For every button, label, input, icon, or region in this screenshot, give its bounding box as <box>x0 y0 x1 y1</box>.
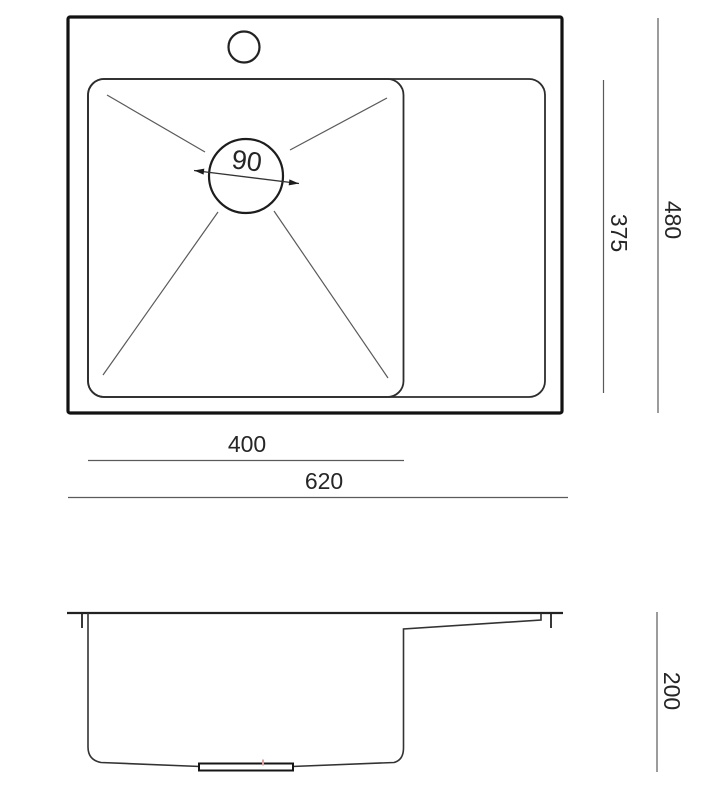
faucet-hole <box>229 32 260 63</box>
dimension-arrow-left <box>194 169 204 175</box>
drain-locator-line-top-right <box>290 98 387 150</box>
drain-fitting <box>199 764 293 771</box>
drain-locator-line-top-left <box>107 95 205 152</box>
overall-width-label: 620 <box>305 468 343 494</box>
bowl-height-label: 200 <box>659 672 685 710</box>
technical-drawing-canvas: 90 375 480 400 620 <box>0 0 727 800</box>
sink-top-view: 90 375 480 400 620 <box>68 17 686 498</box>
sink-side-view: 200 <box>67 612 685 772</box>
sink-drawing-svg: 90 375 480 400 620 <box>0 0 727 800</box>
bowl-profile <box>88 613 541 767</box>
dimension-arrow-right <box>289 179 299 185</box>
basin-outline <box>88 79 545 397</box>
drain-locator-line-bottom-left <box>103 212 218 375</box>
overall-depth-label: 480 <box>660 201 686 239</box>
bowl-outline <box>88 79 404 397</box>
bowl-width-label: 400 <box>228 431 266 457</box>
bowl-depth-label: 375 <box>606 214 632 252</box>
drain-locator-line-bottom-right <box>274 211 388 378</box>
drain-diameter-label: 90 <box>230 144 263 177</box>
outer-rim-outline <box>68 17 562 413</box>
